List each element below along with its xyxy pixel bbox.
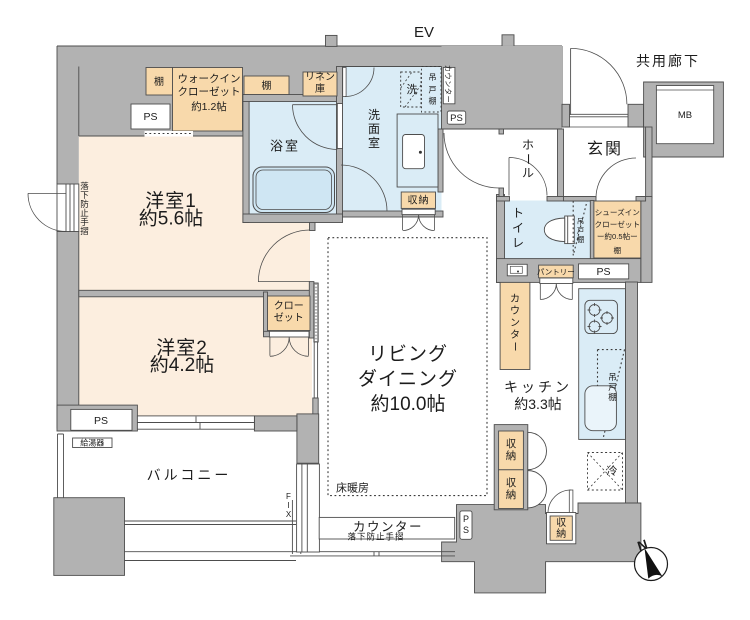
svg-text:棚: 棚 bbox=[577, 234, 585, 244]
svg-text:吊: 吊 bbox=[608, 372, 617, 382]
svg-text:納: 納 bbox=[506, 449, 517, 462]
svg-text:約5.6帖: 約5.6帖 bbox=[139, 208, 203, 230]
svg-text:給湯器: 給湯器 bbox=[80, 438, 104, 448]
svg-text:棚: 棚 bbox=[154, 75, 164, 88]
svg-text:リビング: リビング bbox=[368, 343, 448, 365]
svg-text:面: 面 bbox=[368, 122, 380, 136]
svg-text:PS: PS bbox=[143, 111, 157, 123]
svg-text:収: 収 bbox=[556, 517, 566, 529]
svg-text:PS: PS bbox=[596, 266, 610, 278]
svg-text:パントリー: パントリー bbox=[537, 268, 575, 277]
svg-text:収: 収 bbox=[506, 477, 517, 489]
svg-text:収納: 収納 bbox=[408, 194, 430, 207]
svg-text:バルコニー: バルコニー bbox=[147, 467, 232, 483]
svg-text:I: I bbox=[287, 501, 289, 510]
svg-text:冷: 冷 bbox=[607, 465, 618, 478]
svg-text:キッチン: キッチン bbox=[504, 379, 572, 395]
svg-text:PS: PS bbox=[94, 415, 108, 427]
svg-text:ン: ン bbox=[510, 318, 520, 329]
svg-text:吊: 吊 bbox=[577, 217, 585, 226]
svg-text:摺: 摺 bbox=[80, 226, 89, 236]
svg-text:棚: 棚 bbox=[429, 96, 437, 106]
svg-text:棚: 棚 bbox=[608, 392, 617, 402]
svg-text:収: 収 bbox=[506, 438, 517, 450]
svg-text:約3.3帖: 約3.3帖 bbox=[514, 396, 561, 412]
svg-text:クローゼット: クローゼット bbox=[595, 219, 641, 229]
svg-text:戸: 戸 bbox=[429, 86, 437, 95]
svg-text:室: 室 bbox=[368, 135, 380, 150]
svg-text:ホ: ホ bbox=[522, 138, 534, 152]
svg-text:約4.2帖: 約4.2帖 bbox=[150, 354, 214, 376]
svg-text:イ: イ bbox=[512, 221, 524, 235]
svg-text:ト: ト bbox=[512, 206, 524, 220]
svg-text:レ: レ bbox=[512, 236, 524, 250]
svg-text:タ: タ bbox=[510, 329, 520, 341]
svg-text:リネン: リネン bbox=[305, 71, 335, 83]
svg-text:玄関: 玄関 bbox=[587, 140, 623, 158]
svg-text:カ: カ bbox=[510, 293, 520, 305]
svg-text:納: 納 bbox=[556, 527, 566, 540]
svg-text:MB: MB bbox=[678, 110, 692, 121]
svg-text:棚: 棚 bbox=[614, 245, 622, 255]
svg-text:シューズイン: シューズイン bbox=[595, 207, 640, 217]
svg-text:ウ: ウ bbox=[510, 305, 520, 317]
svg-text:ル: ル bbox=[522, 166, 534, 180]
svg-text:床暖房: 床暖房 bbox=[336, 481, 369, 495]
svg-text:ゼット: ゼット bbox=[274, 312, 304, 324]
svg-text:約10.0帖: 約10.0帖 bbox=[371, 393, 446, 415]
svg-text:X: X bbox=[286, 510, 292, 519]
svg-text:共用廊下: 共用廊下 bbox=[636, 53, 700, 69]
svg-text:EV: EV bbox=[414, 24, 434, 41]
svg-text:ー約0.5帖ー: ー約0.5帖ー bbox=[597, 231, 638, 241]
svg-text:吊: 吊 bbox=[429, 73, 437, 82]
svg-text:クロー: クロー bbox=[274, 300, 304, 312]
svg-text:ー: ー bbox=[509, 342, 520, 352]
svg-text:F: F bbox=[286, 492, 291, 501]
svg-text:浴室: 浴室 bbox=[270, 139, 300, 154]
svg-text:落下防止手摺: 落下防止手摺 bbox=[347, 532, 404, 542]
svg-text:棚: 棚 bbox=[262, 79, 272, 92]
svg-text:洗: 洗 bbox=[368, 108, 380, 122]
svg-text:納: 納 bbox=[506, 488, 517, 501]
svg-text:ダイニング: ダイニング bbox=[358, 368, 458, 390]
svg-text:ー: ー bbox=[521, 153, 535, 165]
svg-text:P: P bbox=[463, 514, 469, 524]
svg-text:クローゼット: クローゼット bbox=[178, 86, 241, 98]
svg-text:庫: 庫 bbox=[315, 82, 325, 95]
svg-text:カウンター: カウンター bbox=[444, 65, 453, 103]
svg-text:PS: PS bbox=[450, 113, 463, 124]
svg-text:S: S bbox=[463, 525, 469, 535]
svg-text:戸: 戸 bbox=[577, 226, 585, 235]
svg-text:ウォークイン: ウォークイン bbox=[178, 73, 241, 85]
svg-text:戸: 戸 bbox=[608, 382, 617, 392]
svg-text:約1.2帖: 約1.2帖 bbox=[191, 100, 227, 113]
svg-text:洗: 洗 bbox=[407, 83, 418, 96]
